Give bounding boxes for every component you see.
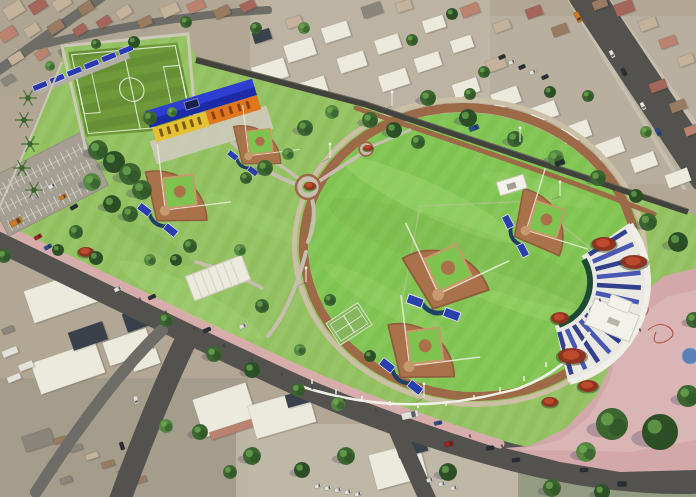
tree-canopy-highlight — [546, 482, 553, 489]
tree — [183, 239, 197, 253]
tree-canopy-highlight — [252, 24, 257, 29]
vehicle-body — [512, 457, 520, 462]
vehicle-body — [580, 468, 588, 472]
tree — [91, 39, 101, 49]
tree — [250, 22, 262, 34]
tree-canopy-highlight — [93, 41, 97, 45]
flower-bed-bloom — [364, 145, 370, 149]
tree-canopy-highlight — [688, 314, 694, 320]
tree-canopy-highlight — [194, 426, 200, 432]
tree — [255, 299, 269, 313]
tree-canopy-highlight — [182, 18, 187, 23]
tree — [128, 36, 140, 48]
aerial-rendering-stage — [0, 0, 696, 497]
tree-canopy-highlight — [185, 241, 191, 247]
tree — [582, 90, 594, 102]
flower-bed-bloom — [554, 313, 565, 320]
tree-canopy-highlight — [466, 90, 471, 95]
pole-lamp — [305, 267, 308, 270]
tree — [144, 254, 156, 266]
tree-canopy-highlight — [246, 364, 252, 370]
tree-canopy-highlight — [225, 467, 231, 473]
pole-lamp — [391, 91, 394, 94]
tree — [478, 66, 490, 78]
tree-canopy-highlight — [326, 296, 331, 301]
car — [512, 457, 520, 462]
tree — [240, 172, 252, 184]
tree-canopy-highlight — [161, 315, 167, 321]
tree — [364, 350, 376, 362]
car — [580, 468, 588, 472]
tree — [159, 419, 173, 433]
flower-bed-bloom — [80, 248, 90, 254]
tree-canopy-highlight — [145, 113, 151, 119]
tree-canopy-highlight — [169, 109, 173, 113]
tree-canopy-highlight — [236, 246, 241, 251]
tree-canopy-highlight — [550, 152, 556, 158]
tree — [170, 254, 182, 266]
tree-canopy-highlight — [333, 399, 339, 405]
tree-canopy-highlight — [299, 122, 305, 128]
palm-crown — [21, 117, 26, 122]
tree-canopy-highlight — [246, 450, 253, 457]
tree-canopy-highlight — [579, 445, 587, 453]
tree — [223, 465, 237, 479]
flower-bed-bloom — [581, 381, 593, 388]
tree-canopy-highlight — [422, 92, 428, 98]
palm-crown — [19, 165, 24, 170]
tree-canopy-highlight — [388, 124, 394, 130]
tree — [89, 251, 103, 265]
pole-lamp — [329, 143, 332, 146]
tree — [234, 244, 246, 256]
tree-canopy-highlight — [631, 191, 637, 197]
tree-canopy-highlight — [680, 388, 689, 397]
tree-canopy-highlight — [259, 162, 265, 168]
tree-canopy-highlight — [284, 150, 289, 155]
tree-canopy-highlight — [124, 208, 130, 214]
tree-canopy-highlight — [161, 421, 167, 427]
tree-canopy-highlight — [408, 36, 413, 41]
tree-canopy-highlight — [296, 464, 302, 470]
tree-canopy-highlight — [340, 450, 347, 457]
vehicle-windshield — [585, 469, 587, 472]
tree-canopy-highlight — [208, 348, 214, 354]
tree — [45, 61, 55, 71]
tree — [159, 313, 173, 327]
tree-canopy-highlight — [71, 227, 77, 233]
tree — [291, 383, 305, 397]
tree-canopy-highlight — [86, 176, 93, 183]
tree — [143, 111, 157, 125]
tree — [544, 86, 556, 98]
solar-panel-strip — [597, 285, 641, 288]
palm-crown — [31, 187, 36, 192]
flower-bed-bloom — [596, 239, 610, 247]
tree-canopy-highlight — [135, 183, 143, 191]
tree — [411, 135, 425, 149]
tree-canopy-highlight — [122, 166, 131, 175]
tree-canopy-highlight — [257, 301, 263, 307]
tree-canopy-highlight — [146, 256, 151, 261]
tree — [325, 105, 339, 119]
tree-canopy-highlight — [91, 143, 99, 151]
tree-canopy-highlight — [130, 38, 135, 43]
palm-crown — [25, 95, 30, 100]
vehicle-windshield — [516, 458, 518, 461]
tree-canopy-highlight — [546, 88, 551, 93]
tree-canopy-highlight — [106, 198, 113, 205]
tree — [629, 189, 643, 203]
tree-canopy-highlight — [300, 24, 305, 29]
tree-canopy-highlight — [642, 128, 647, 133]
tree-canopy-highlight — [480, 68, 485, 73]
tree-canopy-highlight — [172, 256, 177, 261]
tree-canopy-highlight — [106, 154, 115, 163]
tree-canopy-highlight — [596, 486, 602, 492]
pole-lamp — [559, 181, 562, 184]
tree — [52, 244, 64, 256]
pole-lamp — [423, 383, 426, 386]
vehicle-body — [617, 481, 626, 486]
flower-bed-bloom — [544, 398, 554, 404]
tree — [69, 225, 83, 239]
tree-canopy-highlight — [366, 352, 371, 357]
plaza-fountain — [682, 348, 696, 364]
flower-bed-bloom — [563, 350, 580, 360]
tree-canopy-highlight — [592, 172, 598, 178]
tree — [282, 148, 294, 160]
tree — [464, 88, 476, 100]
tree-canopy-highlight — [91, 253, 97, 259]
tree — [167, 107, 177, 117]
tree-canopy-highlight — [413, 137, 419, 143]
vehicle-windshield — [623, 482, 625, 486]
tree-canopy-highlight — [647, 419, 661, 433]
pole-lamp — [519, 127, 522, 130]
tree-canopy-highlight — [442, 466, 449, 473]
tree-canopy-highlight — [601, 413, 614, 426]
tree-canopy-highlight — [47, 63, 51, 67]
tree — [406, 34, 418, 46]
car — [617, 481, 626, 486]
tree-canopy-highlight — [462, 112, 469, 119]
tree-canopy-highlight — [509, 133, 515, 139]
tree-canopy-highlight — [671, 235, 679, 243]
tree — [324, 294, 336, 306]
tree-canopy-highlight — [364, 114, 370, 120]
tree-canopy-highlight — [293, 385, 299, 391]
tree — [298, 22, 310, 34]
tree-canopy-highlight — [54, 246, 59, 251]
palm-crown — [27, 141, 32, 146]
tree-canopy-highlight — [642, 216, 649, 223]
tree-canopy-highlight — [327, 107, 333, 113]
tree-canopy-highlight — [242, 174, 247, 179]
sports-park-aerial-rendering — [0, 0, 696, 497]
tree — [446, 8, 458, 20]
tree-canopy-highlight — [584, 92, 589, 97]
flower-bed-bloom — [305, 183, 312, 188]
tree — [640, 126, 652, 138]
pole-lamp — [639, 239, 642, 242]
flower-bed-bloom — [625, 257, 641, 265]
tree — [180, 16, 192, 28]
tree-canopy-highlight — [448, 10, 453, 15]
